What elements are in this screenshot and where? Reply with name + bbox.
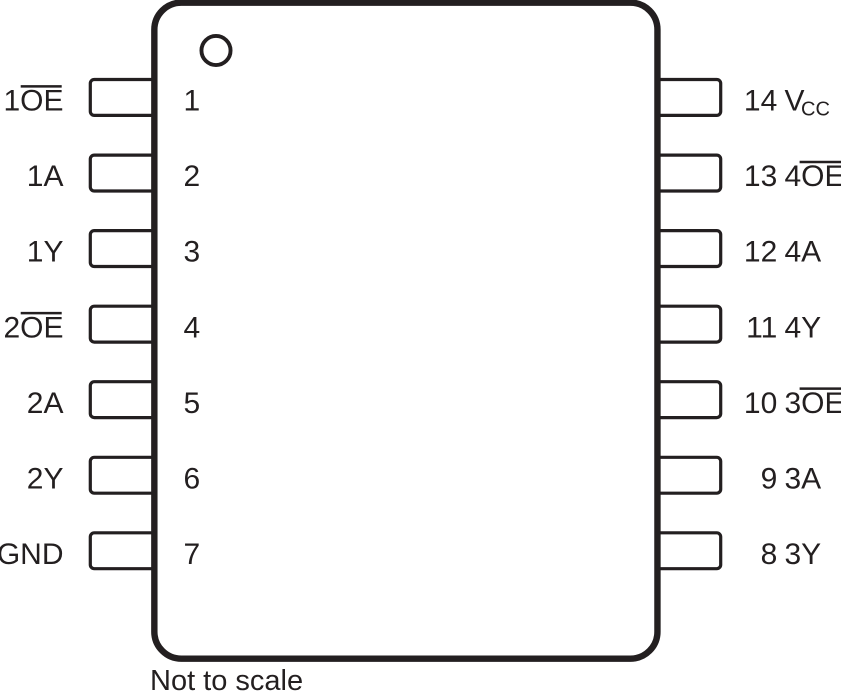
svg-text:7: 7 [184, 538, 201, 571]
svg-text:2: 2 [184, 160, 201, 193]
svg-text:4OE: 4OE [785, 160, 841, 193]
svg-text:12: 12 [744, 236, 777, 269]
svg-text:6: 6 [184, 462, 201, 495]
svg-text:4: 4 [184, 311, 201, 344]
svg-text:1Y: 1Y [27, 236, 64, 269]
svg-text:11: 11 [746, 311, 777, 344]
svg-text:3: 3 [184, 236, 201, 269]
svg-text:1: 1 [184, 85, 201, 118]
svg-text:1A: 1A [27, 160, 64, 193]
svg-text:1OE: 1OE [3, 85, 63, 118]
svg-text:4Y: 4Y [785, 311, 822, 344]
svg-text:2A: 2A [27, 387, 64, 420]
svg-text:3OE: 3OE [785, 387, 841, 420]
svg-text:3A: 3A [785, 462, 822, 495]
svg-text:3Y: 3Y [785, 538, 822, 571]
svg-text:8: 8 [761, 538, 778, 571]
svg-text:GND: GND [0, 538, 64, 571]
svg-text:2Y: 2Y [27, 462, 64, 495]
svg-text:4A: 4A [785, 236, 822, 269]
svg-text:5: 5 [184, 387, 201, 420]
svg-text:Not to scale: Not to scale [150, 665, 303, 691]
svg-text:13: 13 [744, 160, 777, 193]
svg-text:2OE: 2OE [3, 311, 63, 344]
svg-text:10: 10 [744, 387, 777, 420]
svg-text:14: 14 [744, 85, 777, 118]
svg-text:9: 9 [761, 462, 778, 495]
